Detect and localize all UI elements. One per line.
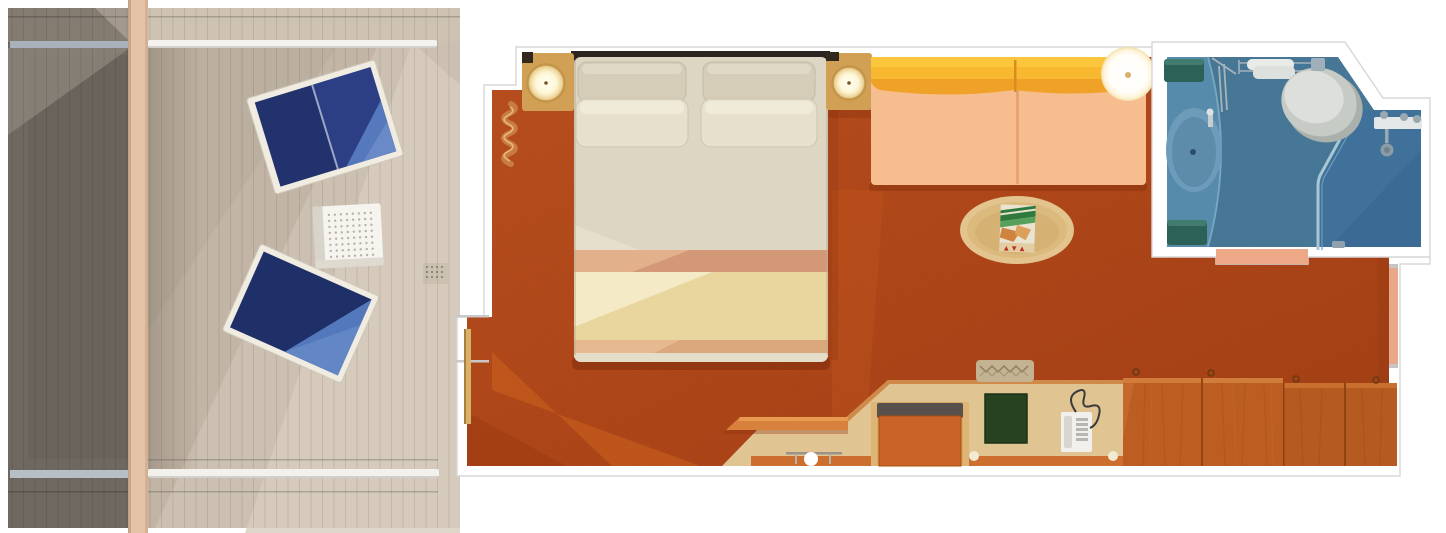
svg-text:▲▼▲: ▲▼▲ (1002, 244, 1026, 254)
